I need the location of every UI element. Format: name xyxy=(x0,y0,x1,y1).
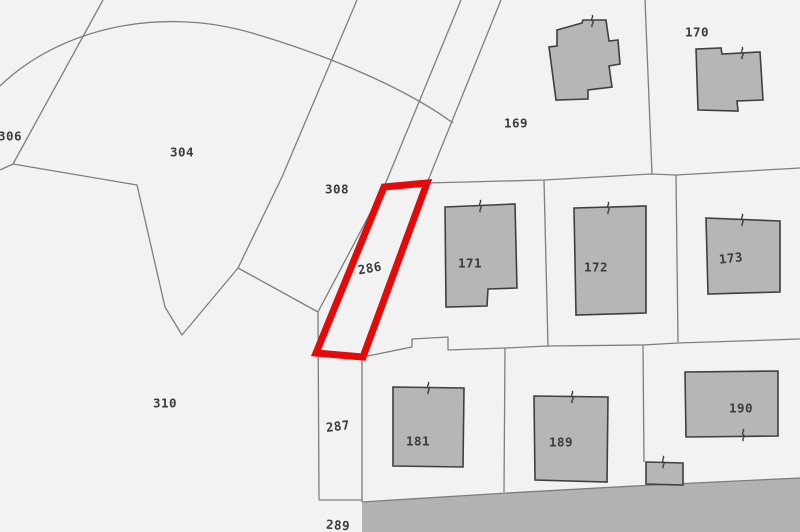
parcel-label-173[interactable]: 173 xyxy=(718,249,744,266)
map-canvas: 3063043082863102872891691701711721731811… xyxy=(0,0,800,532)
parcel-label-171[interactable]: 171 xyxy=(458,256,482,271)
parcel-label-308[interactable]: 308 xyxy=(325,182,349,197)
parcel-label-170[interactable]: 170 xyxy=(685,25,709,40)
parcel-label-169[interactable]: 169 xyxy=(504,116,528,131)
parcel-label-189[interactable]: 189 xyxy=(549,435,573,450)
parcel-label-289[interactable]: 289 xyxy=(326,517,351,532)
parcel-label-310[interactable]: 310 xyxy=(153,396,177,411)
parcel-label-190[interactable]: 190 xyxy=(729,401,753,416)
parcel-label-304[interactable]: 304 xyxy=(170,145,194,160)
cadastral-map: 3063043082863102872891691701711721731811… xyxy=(0,0,800,532)
parcel-label-172[interactable]: 172 xyxy=(584,260,608,275)
parcel-label-181[interactable]: 181 xyxy=(406,434,430,449)
parcel-label-287[interactable]: 287 xyxy=(325,417,351,435)
building-173 xyxy=(706,218,780,294)
parcel-label-306[interactable]: 306 xyxy=(0,129,22,144)
building-181 xyxy=(393,387,464,467)
building-annex-190 xyxy=(646,462,683,485)
